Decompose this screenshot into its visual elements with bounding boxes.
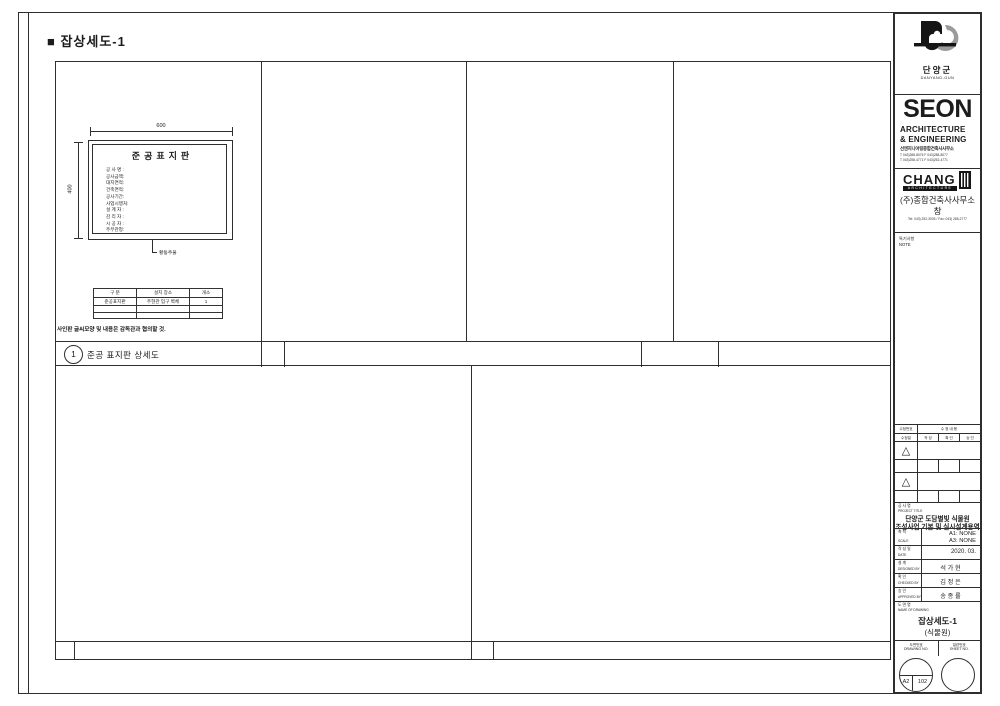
approved-label-en: APPROVED BY bbox=[898, 595, 921, 599]
revision-col-no: 수정번호 bbox=[895, 425, 917, 433]
revision-col-a: 작 성 bbox=[917, 434, 938, 441]
scale-label-en: SCALE bbox=[898, 539, 908, 543]
checked-by-row: 확 인 CHECKED BY 김 정 은 bbox=[895, 573, 980, 587]
approved-by-name: 송 종 률 bbox=[921, 591, 980, 600]
label-row-divider bbox=[471, 642, 472, 659]
drawing-no-prefix: A2 bbox=[900, 676, 913, 691]
panel-divider bbox=[471, 366, 472, 641]
scale-label-ko: 축 척 bbox=[898, 530, 906, 535]
drawing-sheet: ■ 잡상세도-1 1 준공 표지판 상세도 600 bbox=[0, 0, 1000, 706]
revision-delta-icon: △ bbox=[895, 442, 917, 459]
signboard-title: 준공표지판 bbox=[89, 149, 232, 162]
designed-label-ko: 설 계 bbox=[898, 561, 906, 566]
revision-col-b: 확 인 bbox=[938, 434, 959, 441]
revision-header-row2: 수정일 작 성 확 인 승 인 bbox=[895, 433, 980, 441]
revision-desc-cell bbox=[917, 473, 980, 490]
seon-section: SEON ARCHITECTURE & ENGINEERING 선엔지니어링종합… bbox=[895, 94, 980, 168]
leader-label: 황동주물 bbox=[159, 249, 177, 256]
dimension-height-value: 400 bbox=[68, 184, 74, 193]
stamp-number: A2 102 bbox=[900, 676, 933, 691]
client-section: 단양군 DANYANG-GUN bbox=[895, 14, 980, 94]
revision-header-row: 수정번호 수 정 내 용 bbox=[895, 425, 980, 433]
titleblock-sidebar: 단양군 DANYANG-GUN SEON ARCHITECTURE & ENGI… bbox=[893, 12, 982, 694]
spec-cell bbox=[136, 313, 189, 319]
label-row-divider bbox=[641, 342, 642, 367]
spec-header: 구 분 bbox=[94, 289, 136, 297]
scale-value-a1: A1: NONE bbox=[921, 531, 976, 537]
sheet-no-label: 일련번호 SHEET NO. bbox=[938, 641, 981, 656]
drawing-no-suffix: 102 bbox=[913, 676, 932, 691]
client-name-en: DANYANG-GUN bbox=[895, 76, 980, 80]
dimension-line-width bbox=[90, 131, 232, 132]
revision-delta-icon: △ bbox=[895, 473, 917, 490]
completion-signboard: 준공표지판 공 사 명 : 공사금액: 대지면적: 건축면적: 공사기간: 사업… bbox=[88, 140, 233, 240]
revision-row: △ bbox=[895, 472, 980, 490]
date-value: 2020. 03. bbox=[921, 549, 976, 555]
checked-label-en: CHECKED BY bbox=[898, 581, 919, 585]
spec-header: 개소 bbox=[189, 289, 222, 297]
project-title-block: 공 사 명 PROJECT TITLE 단양군 도담별빛 식물원 조성사업 기본… bbox=[895, 502, 980, 528]
label-row-divider bbox=[718, 342, 719, 367]
spec-cell: 준공표지판 bbox=[94, 298, 136, 305]
dimension-tick bbox=[232, 127, 233, 136]
label-row-divider bbox=[261, 342, 262, 367]
danyang-gun-logo-icon bbox=[911, 19, 963, 61]
spec-row: 준공표지판 주현관 입구 벽체 1 bbox=[94, 297, 222, 305]
signboard-item: 설 계 자 : bbox=[106, 207, 128, 214]
revision-col-desc: 수 정 내 용 bbox=[917, 425, 980, 433]
detail-number-bubble: 1 bbox=[64, 345, 83, 364]
chang-section: CHANG ARCHITECTURE (주)종합건축사사무소 창 Tel: 04… bbox=[895, 168, 980, 232]
spec-cell bbox=[94, 313, 136, 319]
signboard-item: 감 리 자 : bbox=[106, 214, 128, 221]
spec-cell bbox=[94, 306, 136, 312]
spec-header: 설치 장소 bbox=[136, 289, 189, 297]
drawing-no-stamp: A2 102 bbox=[899, 658, 933, 692]
designed-by-row: 설 계 DESIGNED BY 석 가 현 bbox=[895, 559, 980, 573]
drawing-name-label-en: NAME OF DRAWING bbox=[898, 608, 929, 612]
date-row: 작 성 일 DATE 2020. 03. bbox=[895, 545, 980, 559]
number-header-row: 도면번호 DRAWING NO. 일련번호 SHEET NO. bbox=[895, 640, 980, 656]
revision-row: △ bbox=[895, 441, 980, 459]
dimension-width-value: 600 bbox=[90, 123, 232, 129]
spec-cell: 주현관 입구 벽체 bbox=[136, 298, 189, 305]
signboard-item: 주무관청: bbox=[106, 227, 128, 234]
designed-label-en: DESIGNED BY bbox=[898, 567, 920, 571]
signboard-item: 공사기간: bbox=[106, 194, 128, 201]
label-row-divider bbox=[284, 342, 285, 367]
client-name: 단양군 bbox=[895, 64, 980, 76]
note-label-en: NOTE bbox=[899, 242, 911, 247]
revision-date-cell bbox=[895, 460, 917, 472]
spec-cell bbox=[136, 306, 189, 312]
bottom-label-row bbox=[56, 641, 890, 658]
label-row-divider bbox=[74, 642, 75, 659]
chang-company-name2: 창 bbox=[895, 204, 980, 217]
sheet-title: ■ 잡상세도-1 bbox=[47, 31, 126, 50]
approved-label-ko: 승 인 bbox=[898, 589, 906, 594]
panel-divider bbox=[466, 62, 467, 341]
chang-wordmark: CHANG bbox=[903, 172, 956, 187]
seon-contact2: T 043)258-4771 F 043)252-4771 bbox=[900, 158, 948, 162]
seon-contact1: T 043)288-8076 F 043)288-8077 bbox=[900, 153, 948, 157]
checked-label-ko: 확 인 bbox=[898, 575, 906, 580]
signboard-item-list: 공 사 명 : 공사금액: 대지면적: 건축면적: 공사기간: 사업시행처: 설… bbox=[106, 167, 128, 234]
scale-row: 축 척 SCALE A1: NONE A3: NONE bbox=[895, 528, 980, 545]
spec-header-row: 구 분 설치 장소 개소 bbox=[94, 289, 222, 297]
leader-line bbox=[152, 252, 157, 253]
revision-sign-cell bbox=[917, 460, 938, 472]
label-row-divider bbox=[493, 642, 494, 659]
spec-table: 구 분 설치 장소 개소 준공표지판 주현관 입구 벽체 1 bbox=[93, 288, 223, 319]
designed-by-name: 석 가 현 bbox=[921, 563, 980, 572]
chang-building-icon bbox=[959, 171, 971, 189]
revision-sign-cell bbox=[938, 460, 959, 472]
panel-divider bbox=[673, 62, 674, 341]
spec-row bbox=[94, 312, 222, 319]
drawing-no-label: 도면번호 DRAWING NO. bbox=[895, 641, 938, 656]
date-label-ko: 작 성 일 bbox=[898, 547, 911, 552]
seon-wordmark: SEON bbox=[895, 97, 980, 122]
spec-cell bbox=[189, 313, 222, 319]
revision-col-date: 수정일 bbox=[895, 434, 917, 441]
signboard-item: 공 사 명 : bbox=[106, 167, 128, 174]
approved-by-row: 승 인 APPROVED BY 송 종 률 bbox=[895, 587, 980, 601]
spec-cell: 1 bbox=[189, 298, 222, 305]
revision-row bbox=[895, 459, 980, 472]
dimension-tick bbox=[74, 238, 83, 239]
page-margin-line bbox=[28, 12, 29, 694]
detail-label-row: 1 준공 표지판 상세도 bbox=[56, 341, 890, 366]
sheet-no-label-en: SHEET NO. bbox=[939, 647, 981, 651]
drawing-no-label-en: DRAWING NO. bbox=[895, 647, 938, 651]
detail-number: 1 bbox=[71, 349, 76, 359]
spec-row bbox=[94, 305, 222, 312]
revision-desc-cell bbox=[917, 442, 980, 459]
seon-line2: & ENGINEERING bbox=[900, 135, 967, 144]
spec-cell bbox=[189, 306, 222, 312]
drawing-name-block: 도 면 명 NAME OF DRAWING 잡상세도-1 (식물원) bbox=[895, 601, 980, 640]
revision-col-c: 승 인 bbox=[959, 434, 980, 441]
panel-divider bbox=[261, 62, 262, 341]
scale-value-a3: A3: NONE bbox=[921, 538, 976, 544]
date-label-en: DATE bbox=[898, 553, 906, 557]
chang-sub-banner: ARCHITECTURE bbox=[903, 186, 957, 191]
checked-by-name: 김 정 은 bbox=[921, 577, 980, 586]
revision-table: 수정번호 수 정 내 용 수정일 작 성 확 인 승 인 △ △ bbox=[895, 424, 980, 503]
drawing-name-line2: (식물원) bbox=[895, 627, 980, 638]
drawing-note: 사인판 글씨모양 및 내용은 감독관과 협의할 것. bbox=[57, 325, 166, 333]
note-section: 특기사항 NOTE bbox=[895, 232, 980, 424]
drawing-name-line1: 잡상세도-1 bbox=[895, 615, 980, 627]
sheet-no-stamp bbox=[941, 658, 975, 692]
detail-title: 준공 표지판 상세도 bbox=[87, 349, 159, 361]
dimension-tick bbox=[74, 142, 83, 143]
chang-tel: Tel: 043) 252-3005 / Fax: 043) 285-2777 bbox=[895, 217, 980, 221]
revision-sign-cell bbox=[959, 460, 980, 472]
seon-line1: ARCHITECTURE bbox=[900, 125, 966, 134]
dimension-line-height bbox=[78, 142, 79, 238]
seon-company-name: 선엔지니어링종합건축사사무소 bbox=[900, 146, 954, 152]
signboard-item: 건축면적: bbox=[106, 187, 128, 194]
